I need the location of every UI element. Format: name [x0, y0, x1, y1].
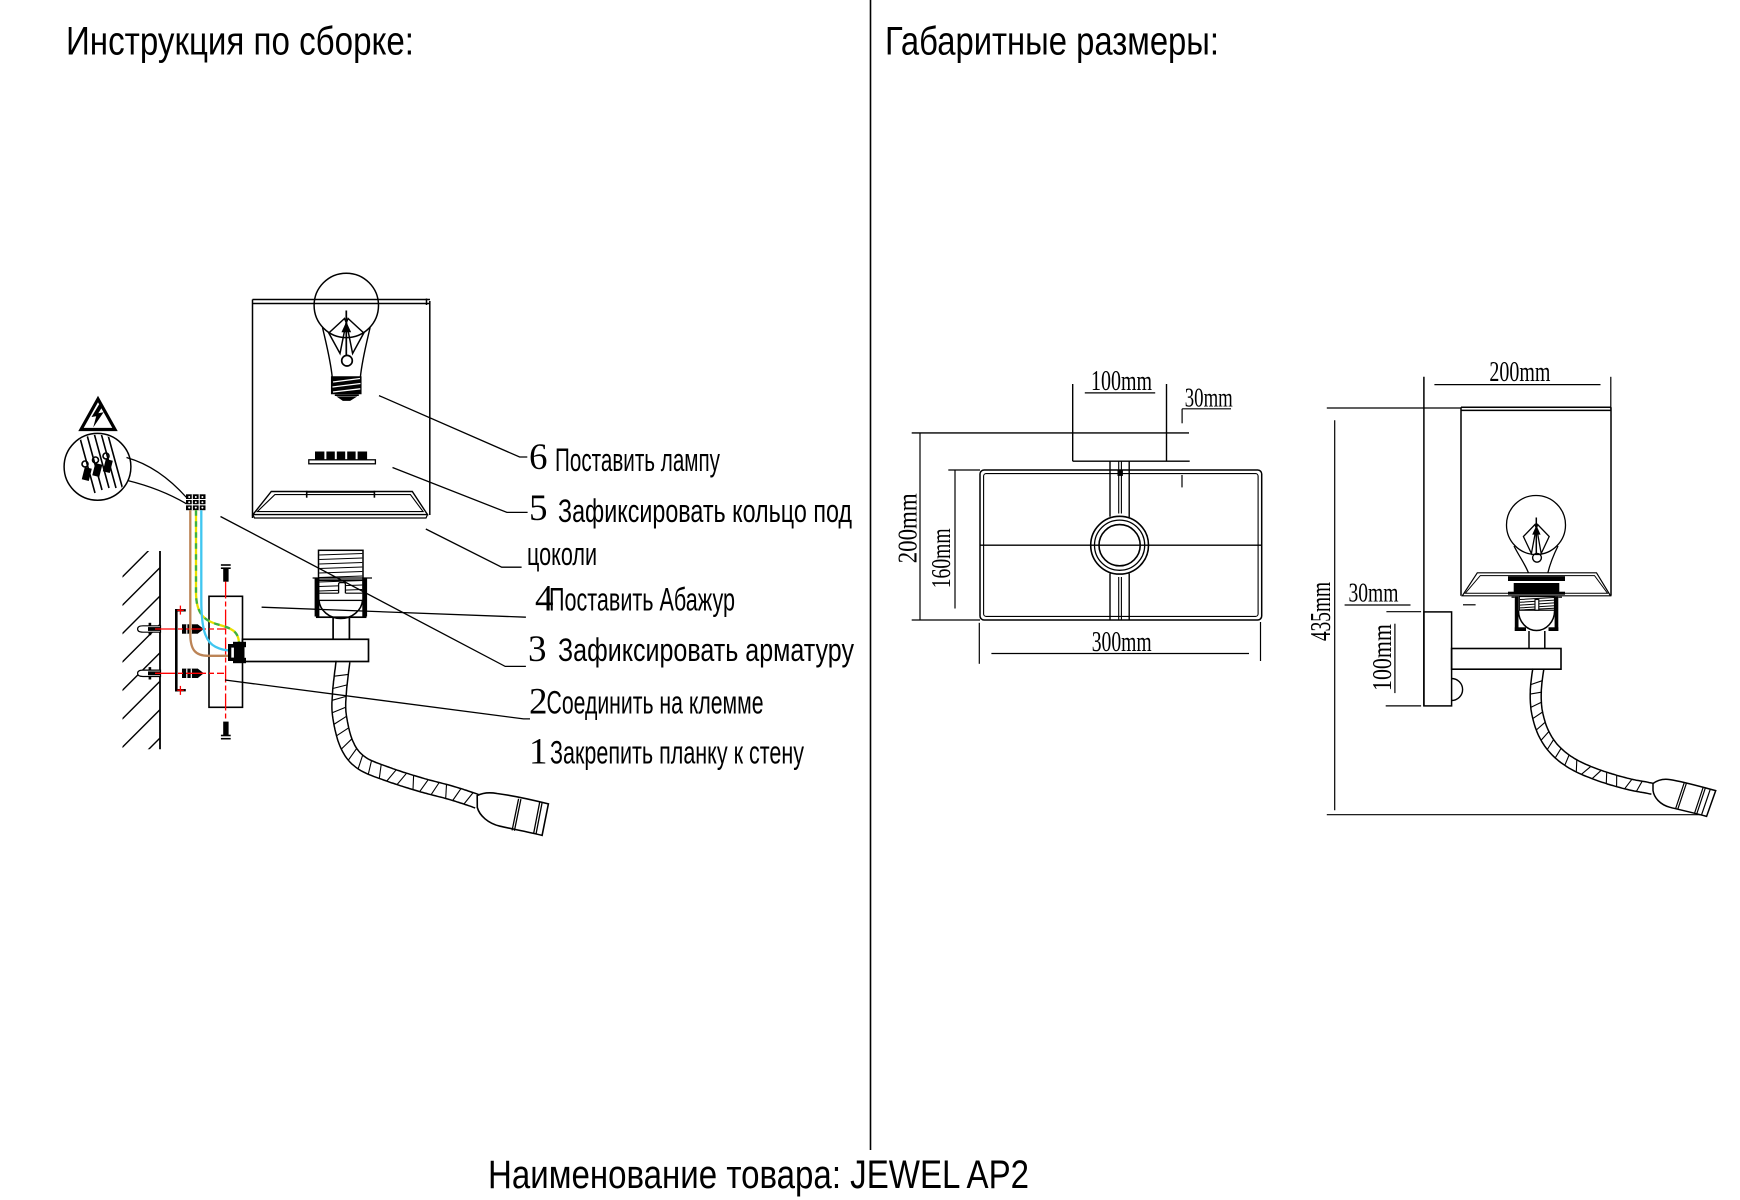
svg-text:цоколи: цоколи: [527, 536, 597, 572]
svg-text:2: 2: [529, 682, 548, 723]
svg-text:435mm: 435mm: [1305, 582, 1337, 641]
svg-text:Зафиксировать арматуру: Зафиксировать арматуру: [558, 632, 854, 668]
svg-text:1: 1: [529, 732, 548, 773]
svg-text:200mm: 200mm: [893, 493, 923, 563]
svg-text:300mm: 300mm: [1092, 626, 1152, 658]
svg-text:5: 5: [529, 488, 548, 529]
svg-text:Поставить Абажур: Поставить Абажур: [549, 582, 735, 618]
svg-text:100mm: 100mm: [1091, 365, 1152, 397]
svg-text:30mm: 30mm: [1185, 383, 1233, 413]
svg-text:Габаритные размеры:: Габаритные размеры:: [885, 20, 1219, 64]
svg-text:160mm: 160mm: [926, 528, 956, 588]
svg-text:Инструкция по сборке:: Инструкция по сборке:: [66, 20, 414, 64]
svg-text:3: 3: [528, 629, 547, 670]
svg-text:Зафиксировать кольцо под: Зафиксировать кольцо под: [558, 493, 852, 529]
svg-text:Наименование товара: JEWEL AP2: Наименование товара: JEWEL AP2: [488, 1153, 1029, 1197]
svg-text:200mm: 200mm: [1489, 356, 1550, 388]
svg-text:Закрепить планку к стену: Закрепить планку к стену: [550, 735, 804, 771]
svg-text:100mm: 100mm: [1367, 624, 1397, 691]
svg-text:Соединить на клемме: Соединить на клемме: [547, 685, 764, 721]
svg-text:6: 6: [529, 437, 548, 478]
svg-text:Поставить лампу: Поставить лампу: [555, 442, 720, 478]
svg-text:30mm: 30mm: [1349, 578, 1399, 608]
